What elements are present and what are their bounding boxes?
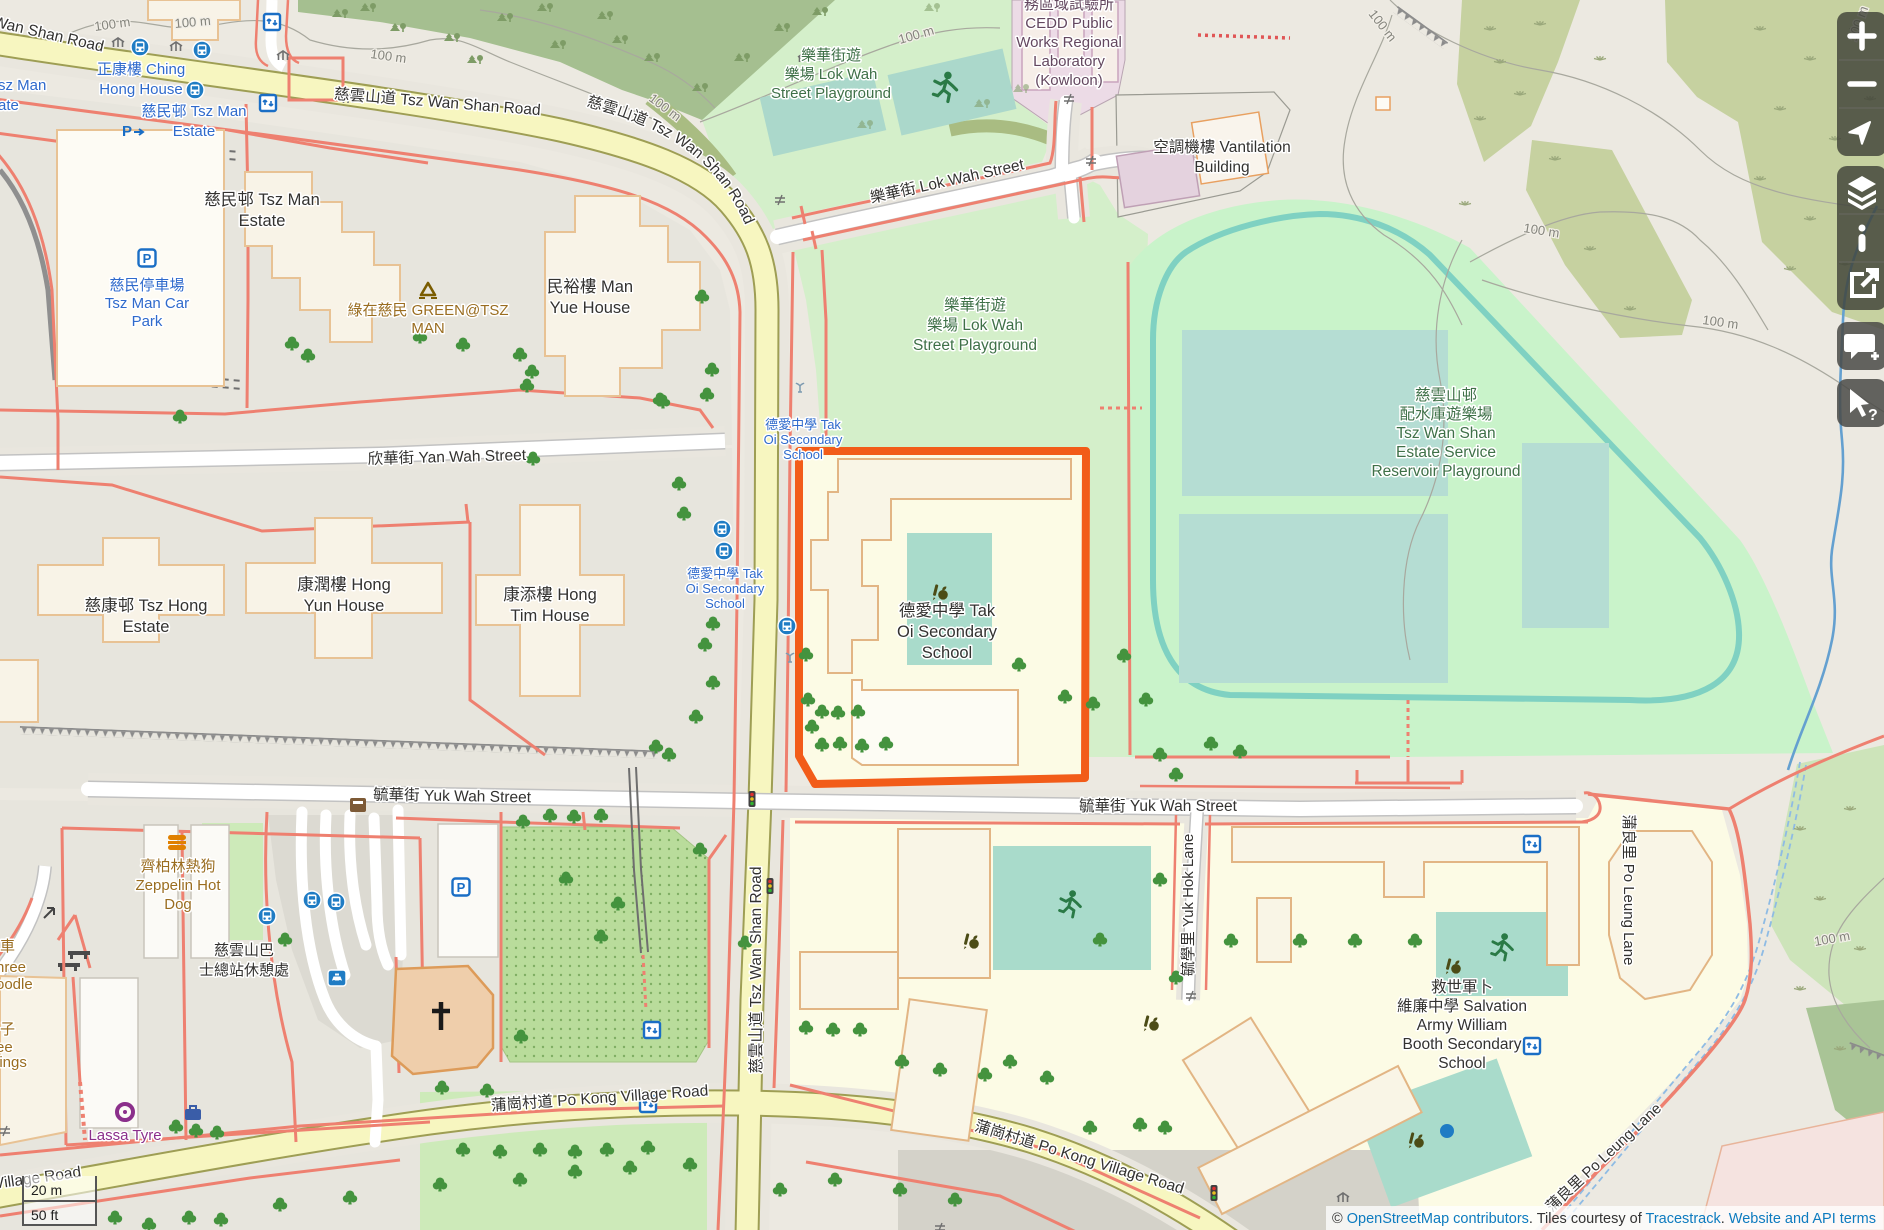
svg-text:救世軍卜: 救世軍卜 <box>1431 978 1493 996</box>
svg-text:正康樓 Ching: 正康樓 Ching <box>97 61 185 78</box>
svg-text:Works Regional: Works Regional <box>1016 34 1122 51</box>
svg-text:lings: lings <box>0 1054 27 1071</box>
svg-text:Oi Secondary: Oi Secondary <box>897 623 998 641</box>
svg-text:oodle: oodle <box>0 976 33 993</box>
svg-text:?: ? <box>1868 407 1878 424</box>
svg-text:Zeppelin Hot: Zeppelin Hot <box>135 877 221 894</box>
svg-text:樂場 Lok Wah: 樂場 Lok Wah <box>785 66 878 83</box>
svg-text:Laboratory: Laboratory <box>1033 53 1105 70</box>
svg-text:慈民邨 Tsz Man: 慈民邨 Tsz Man <box>204 190 320 209</box>
svg-text:子: 子 <box>0 1021 15 1038</box>
svg-text:德愛中學 Tak: 德愛中學 Tak <box>765 417 841 432</box>
svg-text:Building: Building <box>1194 159 1249 176</box>
svg-text:慈民邨 Tsz Man: 慈民邨 Tsz Man <box>141 103 246 120</box>
svg-text:100 m: 100 m <box>174 13 211 31</box>
svg-text:康潤樓 Hong: 康潤樓 Hong <box>297 575 391 594</box>
svg-text:20 m: 20 m <box>31 1182 62 1198</box>
svg-text:Tsz Wan Shan: Tsz Wan Shan <box>1396 425 1495 442</box>
svg-text:Dog: Dog <box>164 896 192 913</box>
svg-text:德愛中學 Tak: 德愛中學 Tak <box>687 566 763 581</box>
svg-text:毓華街 Yuk Wah Street: 毓華街 Yuk Wah Street <box>1079 797 1238 815</box>
svg-text:Estate: Estate <box>239 212 286 230</box>
svg-text:Reservoir Playground: Reservoir Playground <box>1371 463 1520 480</box>
svg-text:毓學里 Yuk Hok Lane: 毓學里 Yuk Hok Lane <box>1179 834 1197 977</box>
svg-text:Tim House: Tim House <box>510 607 589 625</box>
svg-text:CEDD Public: CEDD Public <box>1025 15 1113 32</box>
svg-text:配水庫遊樂場: 配水庫遊樂場 <box>1399 405 1492 423</box>
svg-text:樂華街遊: 樂華街遊 <box>944 296 1006 314</box>
svg-text:空調機樓 Vantilation: 空調機樓 Vantilation <box>1153 138 1291 156</box>
svg-text:School: School <box>705 596 745 611</box>
svg-text:Yun House: Yun House <box>304 597 385 615</box>
svg-text:慈雲山道 Tsz Wan Shan Road: 慈雲山道 Tsz Wan Shan Road <box>747 866 765 1073</box>
svg-text:Lassa Tyre: Lassa Tyre <box>88 1127 161 1144</box>
svg-text:慈雲山邨: 慈雲山邨 <box>1415 386 1477 404</box>
svg-text:維廉中學 Salvation: 維廉中學 Salvation <box>1397 996 1527 1015</box>
svg-text:Street Playground: Street Playground <box>913 337 1037 354</box>
svg-text:Oi Secondary: Oi Secondary <box>764 432 843 447</box>
svg-text:樂場 Lok Wah: 樂場 Lok Wah <box>927 316 1023 334</box>
svg-text:民裕樓 Man: 民裕樓 Man <box>547 277 633 296</box>
svg-text:慈康邨 Tsz Hong: 慈康邨 Tsz Hong <box>85 596 208 615</box>
svg-text:School: School <box>1438 1055 1485 1072</box>
svg-text:Hong House: Hong House <box>99 81 182 98</box>
svg-text:sz Man: sz Man <box>0 77 46 94</box>
svg-text:Tsz Man Car: Tsz Man Car <box>105 295 189 312</box>
svg-text:P: P <box>122 123 132 140</box>
svg-text:德愛中學 Tak: 德愛中學 Tak <box>899 601 996 620</box>
svg-text:Booth Secondary: Booth Secondary <box>1403 1036 1522 1053</box>
svg-text:School: School <box>783 447 823 462</box>
svg-text:Army William: Army William <box>1417 1017 1507 1034</box>
svg-text:MAN: MAN <box>411 320 444 337</box>
svg-text:School: School <box>922 644 972 662</box>
svg-text:樂華街遊: 樂華街遊 <box>801 47 861 64</box>
svg-text:50 ft: 50 ft <box>31 1207 58 1223</box>
svg-text:(Kowloon): (Kowloon) <box>1035 72 1103 89</box>
svg-text:Oi Secondary: Oi Secondary <box>686 581 765 596</box>
svg-text:車: 車 <box>0 938 15 955</box>
svg-text:Street Playground: Street Playground <box>771 85 891 102</box>
svg-text:Estate: Estate <box>173 123 216 140</box>
svg-text:Yue House: Yue House <box>550 299 631 317</box>
svg-text:齊柏林熱狗: 齊柏林熱狗 <box>140 857 215 875</box>
svg-text:蒲良里 Po Leung Lane: 蒲良里 Po Leung Lane <box>1620 815 1637 966</box>
svg-text:士總站休憩處: 士總站休憩處 <box>199 961 289 979</box>
svg-text:務區域試驗所: 務區域試驗所 <box>1024 0 1114 13</box>
svg-text:Estate Service: Estate Service <box>1396 444 1496 461</box>
svg-text:hree: hree <box>0 959 26 976</box>
svg-text:綠在慈民 GREEN@TSZ: 綠在慈民 GREEN@TSZ <box>347 302 508 319</box>
svg-text:慈民停車場: 慈民停車場 <box>109 277 184 294</box>
svg-text:康添樓 Hong: 康添樓 Hong <box>503 585 597 604</box>
svg-text:ate: ate <box>0 97 19 114</box>
svg-text:Estate: Estate <box>123 618 170 636</box>
svg-text:© OpenStreetMap contributors.: © OpenStreetMap contributors. Tiles cour… <box>1332 1211 1876 1227</box>
svg-text:毓華街 Yuk Wah Street: 毓華街 Yuk Wah Street <box>373 786 532 807</box>
svg-text:慈雲山巴: 慈雲山巴 <box>214 942 274 959</box>
svg-text:Park: Park <box>132 313 163 330</box>
